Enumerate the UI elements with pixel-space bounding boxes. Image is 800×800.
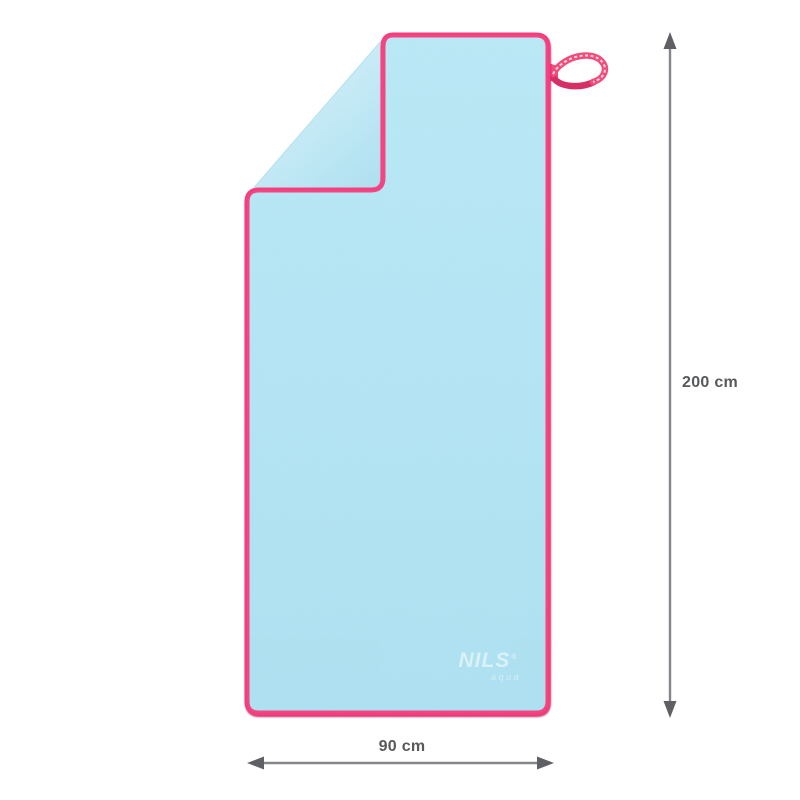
arrowhead-down-icon <box>664 701 677 718</box>
arrowhead-right-icon <box>537 757 554 770</box>
towel-illustration <box>0 0 800 800</box>
registered-mark: ® <box>511 654 517 661</box>
height-dimension-label: 200 cm <box>682 374 738 392</box>
brand-logo-name: NILS® <box>454 650 522 671</box>
brand-logo: NILS® aqua <box>454 650 522 682</box>
brand-name-text: NILS <box>458 649 510 672</box>
dimension-arrow-vertical <box>664 32 677 718</box>
brand-logo-subbrand: aqua <box>454 672 522 682</box>
fabric-grain-texture <box>243 28 553 718</box>
arrowhead-left-icon <box>247 757 264 770</box>
dimension-arrow-horizontal <box>247 757 554 770</box>
width-dimension-label: 90 cm <box>342 738 462 756</box>
hang-loop-ribbon-icon <box>548 55 605 86</box>
arrowhead-up-icon <box>664 32 677 49</box>
product-image-canvas: NILS® aqua 200 cm 90 cm <box>0 0 800 800</box>
